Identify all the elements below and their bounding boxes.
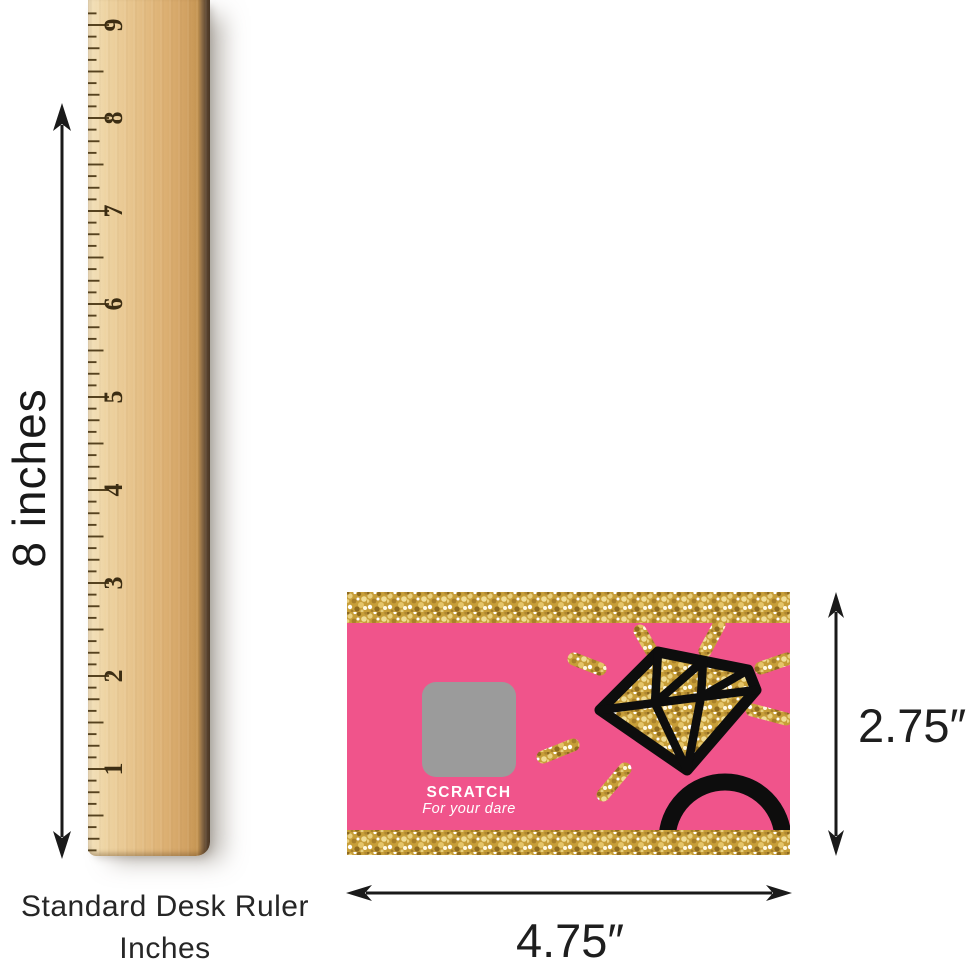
scratch-card: SCRATCH For your dare — [347, 592, 790, 855]
card-width-label: 4.75″ — [420, 913, 720, 968]
scratch-label: SCRATCH — [400, 784, 538, 802]
glitter-band-bottom — [347, 830, 790, 855]
ruler-number: 8 — [99, 102, 129, 134]
ruler-number: 6 — [99, 288, 129, 320]
ruler-number: 3 — [99, 567, 129, 599]
ruler-number: 2 — [99, 660, 129, 692]
ruler-caption: Standard Desk Ruler Inches — [0, 886, 330, 970]
scratch-sublabel: For your dare — [390, 801, 548, 817]
ruler-height-label: 8 inches — [2, 328, 54, 628]
ruler-caption-line2: Inches — [0, 928, 330, 970]
card-width-arrow — [342, 878, 796, 908]
ruler-number: 5 — [99, 381, 129, 413]
ruler-number: 1 — [99, 753, 129, 785]
ruler-number: 7 — [99, 195, 129, 227]
ruler-number: 9 — [99, 9, 129, 41]
wooden-ruler: 123456789 — [88, 0, 210, 856]
ruler-number: 4 — [99, 474, 129, 506]
glitter-band-top — [347, 592, 790, 623]
card-height-label: 2.75″ — [858, 698, 966, 753]
ruler-caption-line1: Standard Desk Ruler — [0, 886, 330, 928]
scratch-off-area — [422, 682, 516, 777]
card-height-arrow — [826, 590, 846, 858]
